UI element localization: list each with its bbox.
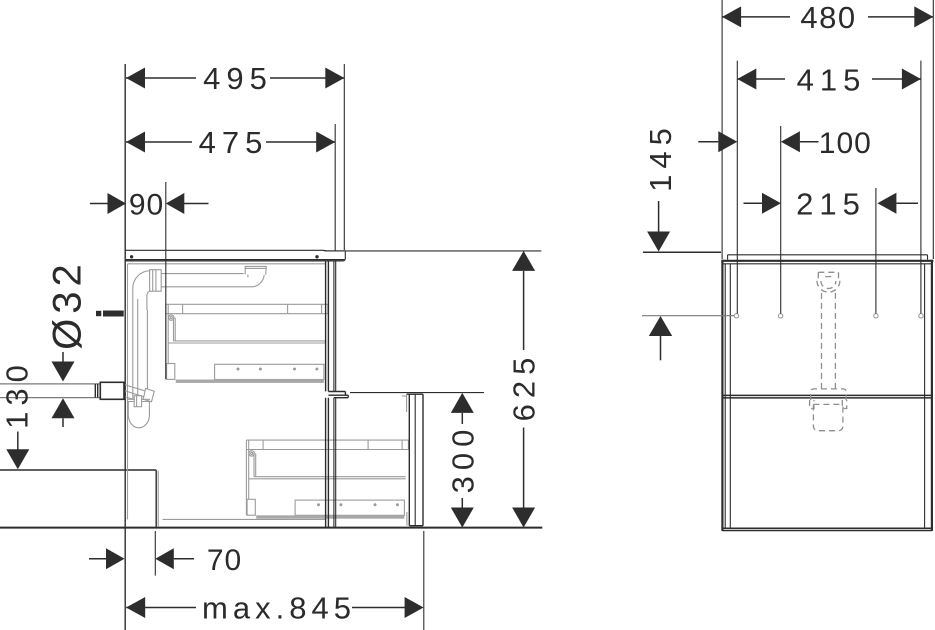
svg-text:215: 215 <box>796 187 866 222</box>
svg-text:145: 145 <box>643 122 678 192</box>
svg-text:300: 300 <box>445 424 480 494</box>
svg-text:480: 480 <box>800 0 856 35</box>
svg-text:415: 415 <box>797 63 867 98</box>
svg-text:90: 90 <box>129 189 164 222</box>
svg-text:max.845: max.845 <box>202 591 356 626</box>
svg-text:100: 100 <box>819 127 872 160</box>
svg-text:Ø32: Ø32 <box>46 259 90 350</box>
svg-text:625: 625 <box>507 352 542 422</box>
svg-text:475: 475 <box>199 125 269 160</box>
svg-text:495: 495 <box>203 61 273 96</box>
svg-text:70: 70 <box>207 544 242 577</box>
svg-text:130: 130 <box>0 359 35 429</box>
